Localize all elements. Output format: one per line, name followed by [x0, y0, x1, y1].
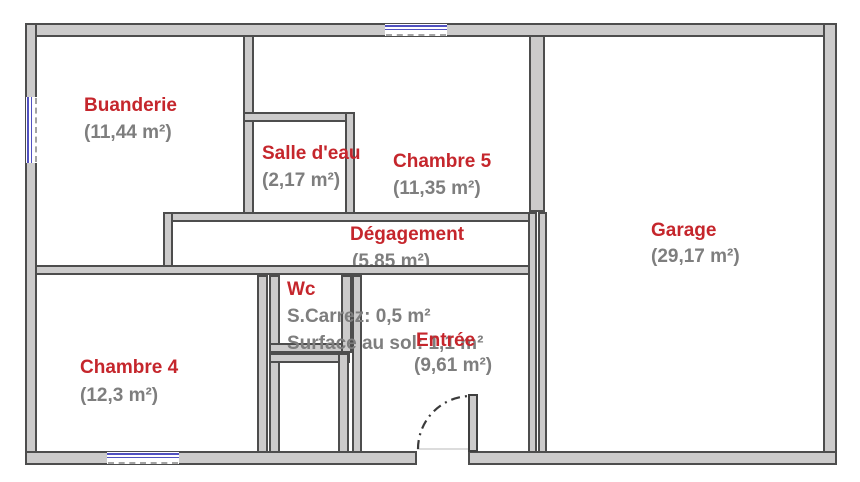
window-glass — [27, 97, 32, 163]
room-area: (9,61 m²) — [414, 353, 492, 378]
wall-garage-upper — [529, 35, 545, 212]
room-label-chambre4: Chambre 4 (12,3 m²) — [80, 354, 178, 410]
room-area: (29,17 m²) — [651, 244, 740, 270]
room-name: Buanderie — [84, 92, 177, 119]
room-label-entree: Entrée (9,61 m²) — [416, 328, 492, 378]
window-glass — [107, 453, 179, 458]
room-area: (2,17 m²) — [262, 167, 361, 194]
wall-chambre4-right — [257, 275, 268, 453]
room-name: Wc — [287, 276, 483, 303]
wall-outer-left — [25, 23, 37, 465]
entrance-door-swing-arc — [409, 387, 479, 457]
room-name: Garage — [651, 218, 740, 244]
window-bottom — [107, 452, 179, 464]
room-label-chambre5: Chambre 5 (11,35 m²) — [393, 148, 491, 202]
wall-degagement-bottom — [35, 265, 533, 275]
wall-buanderie-right — [243, 35, 254, 222]
wall-wc-left — [269, 275, 280, 453]
room-area: (11,35 m²) — [393, 175, 491, 202]
room-name: Chambre 4 — [80, 354, 178, 382]
room-label-degagement-name: Dégagement — [350, 221, 464, 248]
window-sill-dashes — [108, 462, 178, 464]
room-name: Chambre 5 — [393, 148, 491, 175]
room-name: Entrée — [416, 328, 492, 353]
wall-salledeau-top — [243, 112, 355, 122]
window-sill-dashes — [35, 98, 37, 162]
room-name: Salle d'eau — [262, 140, 361, 167]
wall-closet-right — [338, 353, 349, 453]
window-sill-dashes — [386, 34, 446, 36]
window-left — [26, 97, 37, 163]
wall-entree-east — [528, 212, 537, 453]
window-glass — [385, 25, 447, 30]
room-area: (12,3 m²) — [80, 382, 178, 410]
room-label-buanderie: Buanderie (11,44 m²) — [84, 92, 177, 146]
wall-outer-bottom-left — [25, 451, 417, 465]
room-label-garage: Garage (29,17 m²) — [651, 218, 740, 270]
room-name: Dégagement — [350, 221, 464, 248]
room-area: (11,44 m²) — [84, 119, 177, 146]
floor-plan: Buanderie (11,44 m²) Salle d'eau (2,17 m… — [0, 0, 860, 482]
wall-garage-west — [538, 212, 547, 453]
wall-outer-bottom-right — [468, 451, 837, 465]
window-top — [385, 24, 447, 36]
wall-outer-right — [823, 23, 837, 465]
room-label-salle-deau: Salle d'eau (2,17 m²) — [262, 140, 361, 194]
wall-degagement-top — [163, 212, 533, 222]
room-carrez-area: S.Carrez: 0,5 m² — [287, 303, 483, 330]
